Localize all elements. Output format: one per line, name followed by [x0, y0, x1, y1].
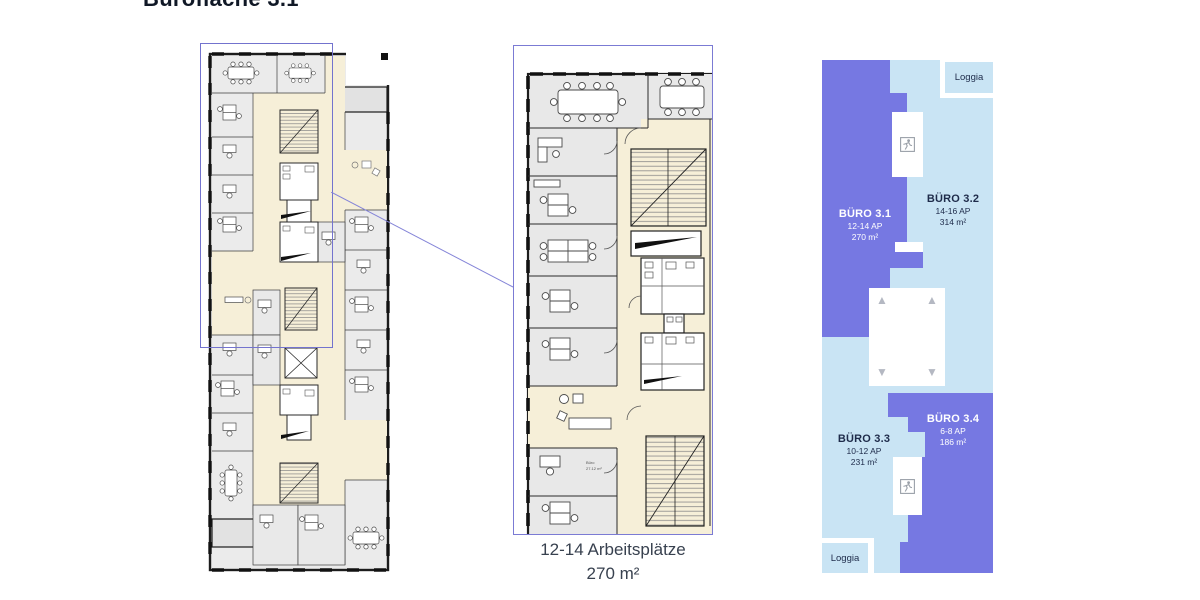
arrow-up-icon: ▲ — [876, 294, 888, 306]
detail-plan-frame: Büro 27.12 m² — [513, 45, 713, 535]
detail-room-label-title: Büro — [586, 460, 595, 465]
zoom-connector-line — [331, 192, 513, 288]
arrow-down-icon: ▼ — [926, 366, 938, 378]
schematic-slot — [895, 242, 923, 252]
area-buero-3-4-cut1 — [888, 417, 908, 432]
buero-3-1-name: BÜRO 3.1 — [824, 208, 906, 221]
exit-icon — [900, 137, 915, 152]
detail-floorplan: Büro 27.12 m² — [514, 46, 712, 534]
caption-workplaces: 12-14 Arbeitsplätze — [507, 540, 719, 560]
detail-caption: 12-14 Arbeitsplätze 270 m² — [507, 540, 719, 584]
label-buero-3-4: BÜRO 3.4 6-8 AP 186 m² — [910, 413, 996, 447]
area-buero-3-1-step2 — [907, 252, 923, 268]
loggia-bottom: Loggia — [822, 543, 868, 573]
buero-3-2-area: 314 m² — [910, 217, 996, 228]
label-buero-3-1: BÜRO 3.1 12-14 AP 270 m² — [824, 208, 906, 242]
detail-room-label-area: 27.12 m² — [586, 466, 602, 471]
label-buero-3-2: BÜRO 3.2 14-16 AP 314 m² — [910, 193, 996, 227]
buero-3-3-ap: 10-12 AP — [822, 446, 906, 457]
buero-3-4-area: 186 m² — [910, 437, 996, 448]
selection-rectangle — [200, 43, 333, 348]
area-buero-3-4-cut5 — [888, 542, 900, 573]
exit-icon — [900, 479, 915, 494]
arrow-down-icon: ▼ — [876, 366, 888, 378]
stairwell-top — [892, 112, 923, 177]
loggia-top: Loggia — [945, 62, 993, 93]
buero-3-4-name: BÜRO 3.4 — [910, 413, 996, 426]
buero-3-1-area: 270 m² — [824, 232, 906, 243]
loggia-top-label: Loggia — [955, 72, 984, 83]
buero-3-2-name: BÜRO 3.2 — [910, 193, 996, 206]
buero-3-3-area: 231 m² — [822, 457, 906, 468]
buero-3-2-ap: 14-16 AP — [910, 206, 996, 217]
area-buero-3-4-cut4 — [888, 515, 908, 542]
arrow-up-icon: ▲ — [926, 294, 938, 306]
buero-3-1-ap: 12-14 AP — [824, 221, 906, 232]
page-title: Bürofläche 3.1 — [143, 0, 299, 12]
loggia-bottom-label: Loggia — [831, 553, 860, 564]
caption-area: 270 m² — [507, 564, 719, 584]
buero-3-3-name: BÜRO 3.3 — [822, 433, 906, 446]
buero-3-4-ap: 6-8 AP — [910, 426, 996, 437]
office-schematic: Loggia Loggia ▲ ▲ ▼ ▼ BÜRO 3.1 — [822, 60, 993, 573]
label-buero-3-3: BÜRO 3.3 10-12 AP 231 m² — [822, 433, 906, 467]
